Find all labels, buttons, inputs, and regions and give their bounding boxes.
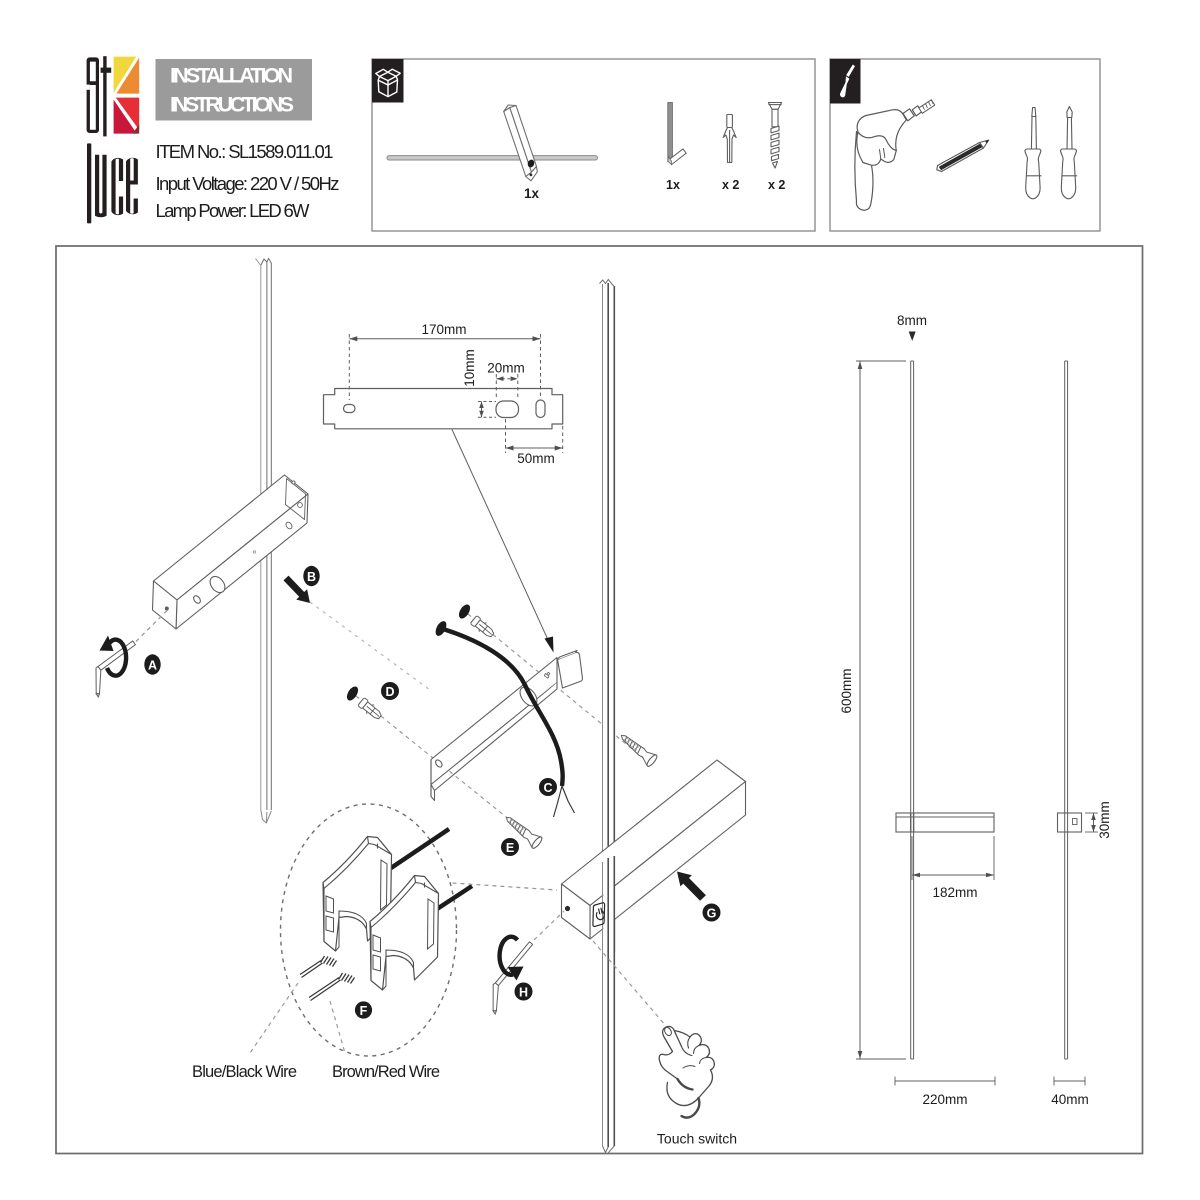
svg-text:INSTRUCTIONS: INSTRUCTIONS — [170, 93, 294, 117]
svg-text:B: B — [307, 570, 316, 584]
svg-text:Lamp Power: LED 6W: Lamp Power: LED 6W — [156, 200, 311, 221]
svg-text:D: D — [385, 685, 394, 699]
svg-text:x 2: x 2 — [722, 178, 739, 192]
svg-text:220mm: 220mm — [922, 1092, 967, 1107]
svg-text:1x: 1x — [666, 178, 680, 192]
svg-text:Blue/Black Wire: Blue/Black Wire — [192, 1063, 297, 1081]
svg-text:Brown/Red Wire: Brown/Red Wire — [332, 1063, 440, 1081]
svg-text:8mm: 8mm — [897, 313, 927, 328]
svg-text:182mm: 182mm — [932, 885, 977, 900]
svg-text:E: E — [506, 841, 514, 855]
svg-text:50mm: 50mm — [517, 451, 555, 466]
svg-text:30mm: 30mm — [1097, 801, 1112, 839]
svg-text:1x: 1x — [524, 186, 540, 201]
svg-text:20mm: 20mm — [487, 361, 525, 376]
svg-text:600mm: 600mm — [839, 668, 854, 713]
svg-text:ITEM No.: SL1589.011.01: ITEM No.: SL1589.011.01 — [156, 141, 334, 162]
svg-text:H: H — [519, 986, 528, 1000]
svg-text:G: G — [707, 907, 717, 921]
svg-text:A: A — [148, 659, 157, 673]
svg-text:C: C — [543, 781, 552, 795]
svg-text:F: F — [360, 1004, 368, 1018]
svg-text:INSTALLATION: INSTALLATION — [170, 64, 293, 88]
svg-text:x 2: x 2 — [768, 178, 785, 192]
svg-text:40mm: 40mm — [1051, 1092, 1089, 1107]
svg-text:Touch switch: Touch switch — [657, 1131, 737, 1147]
svg-text:170mm: 170mm — [421, 322, 466, 337]
svg-text:10mm: 10mm — [462, 349, 477, 387]
svg-text:Input Voltage: 220 V / 50Hz: Input Voltage: 220 V / 50Hz — [156, 173, 340, 194]
